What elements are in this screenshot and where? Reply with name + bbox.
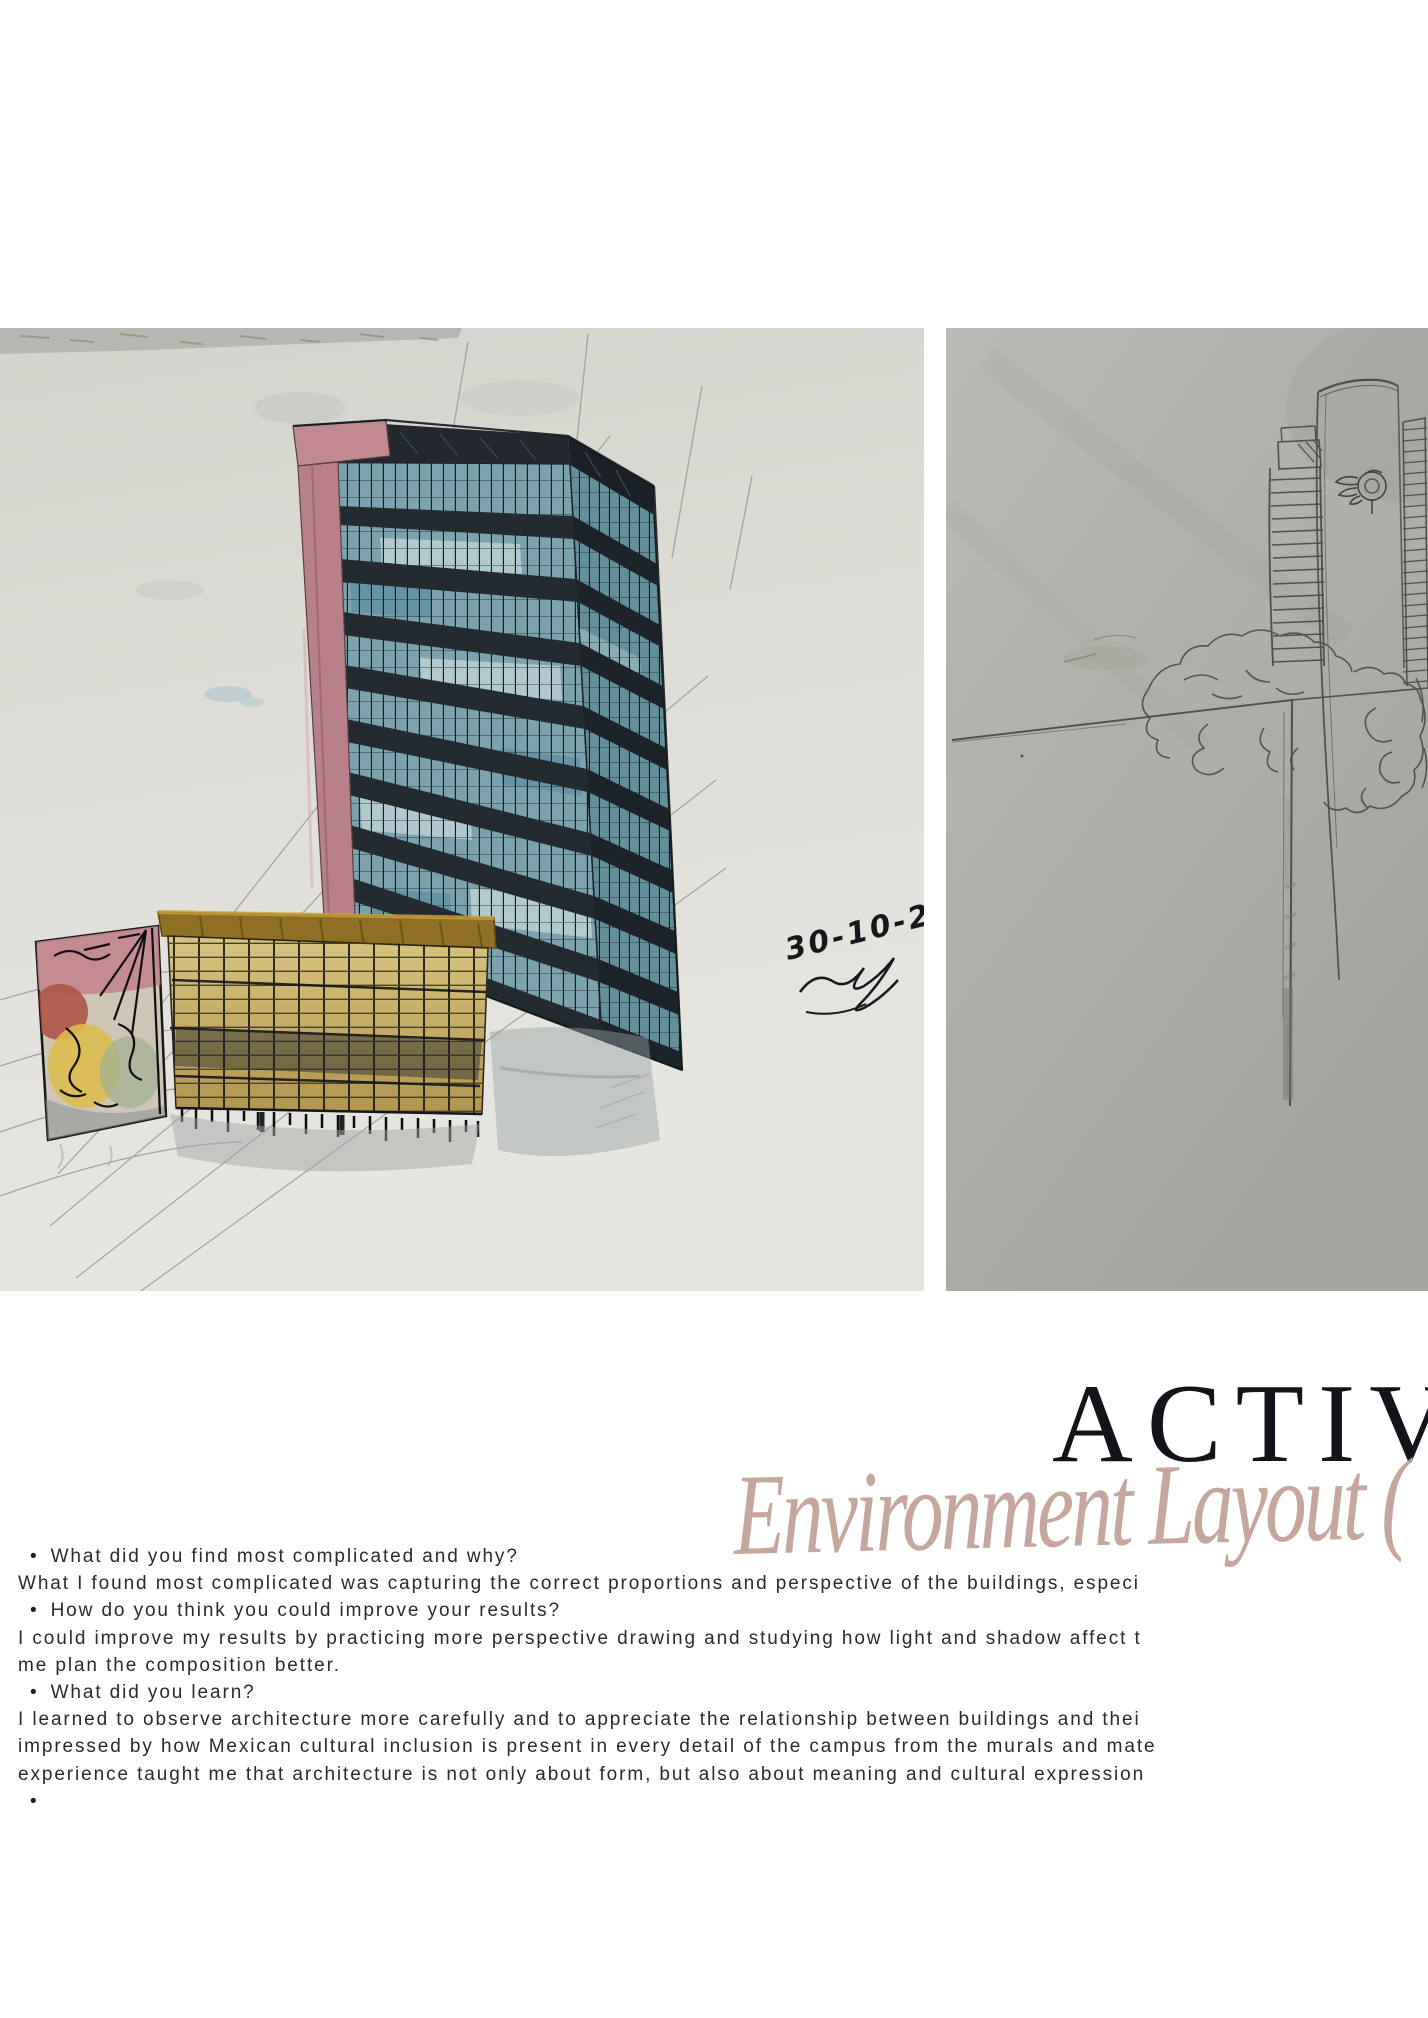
qa-question-3-text: What did you learn? xyxy=(51,1682,256,1703)
bullet-icon: • xyxy=(30,1543,39,1570)
bullet-icon: • xyxy=(30,1788,39,1815)
qa-question-3: •What did you learn? xyxy=(0,1679,1428,1706)
qa-answer-1: What I found most complicated was captur… xyxy=(0,1570,1428,1597)
qa-empty-bullet: • xyxy=(0,1788,1428,1815)
yellow-low-building xyxy=(158,912,496,1114)
bullet-icon: • xyxy=(30,1597,39,1624)
qa-question-2: •How do you think you could improve your… xyxy=(0,1597,1428,1624)
qa-answer-3-line-1: I learned to observe architecture more c… xyxy=(0,1706,1428,1733)
left-sketch-photo: 30-10-25 xyxy=(0,328,924,1291)
qa-answer-3-line-3: experience taught me that architecture i… xyxy=(0,1761,1428,1788)
qa-answer-2-text-2: me plan the composition better. xyxy=(18,1655,341,1676)
qa-question-2-text: How do you think you could improve your … xyxy=(51,1600,561,1621)
qa-answer-3-text-1: I learned to observe architecture more c… xyxy=(18,1709,1141,1730)
qa-answer-2-text-1: I could improve my results by practicing… xyxy=(18,1628,1142,1649)
left-sketch-drawing: 30-10-25 xyxy=(0,328,924,1291)
right-sketch-drawing xyxy=(946,328,1428,1291)
bullet-icon: • xyxy=(30,1679,39,1706)
qa-question-1: •What did you find most complicated and … xyxy=(0,1543,1428,1570)
corner-shading xyxy=(1283,988,1293,1100)
qa-text-block: •What did you find most complicated and … xyxy=(0,1543,1428,1815)
qa-answer-2-line-2: me plan the composition better. xyxy=(0,1652,1428,1679)
portfolio-page: { "header": { "title": "ACTIV", "subtitl… xyxy=(0,0,1428,2018)
mural-panel xyxy=(32,924,166,1140)
qa-question-1-text: What did you find most complicated and w… xyxy=(51,1546,519,1567)
qa-answer-3-text-3: experience taught me that architecture i… xyxy=(18,1764,1145,1785)
qa-answer-1-text: What I found most complicated was captur… xyxy=(18,1573,1140,1594)
right-sketch-photo xyxy=(946,328,1428,1291)
qa-answer-3-line-2: impressed by how Mexican cultural inclus… xyxy=(0,1733,1428,1760)
qa-answer-3-text-2: impressed by how Mexican cultural inclus… xyxy=(18,1736,1157,1757)
qa-answer-2-line-1: I could improve my results by practicing… xyxy=(0,1625,1428,1652)
